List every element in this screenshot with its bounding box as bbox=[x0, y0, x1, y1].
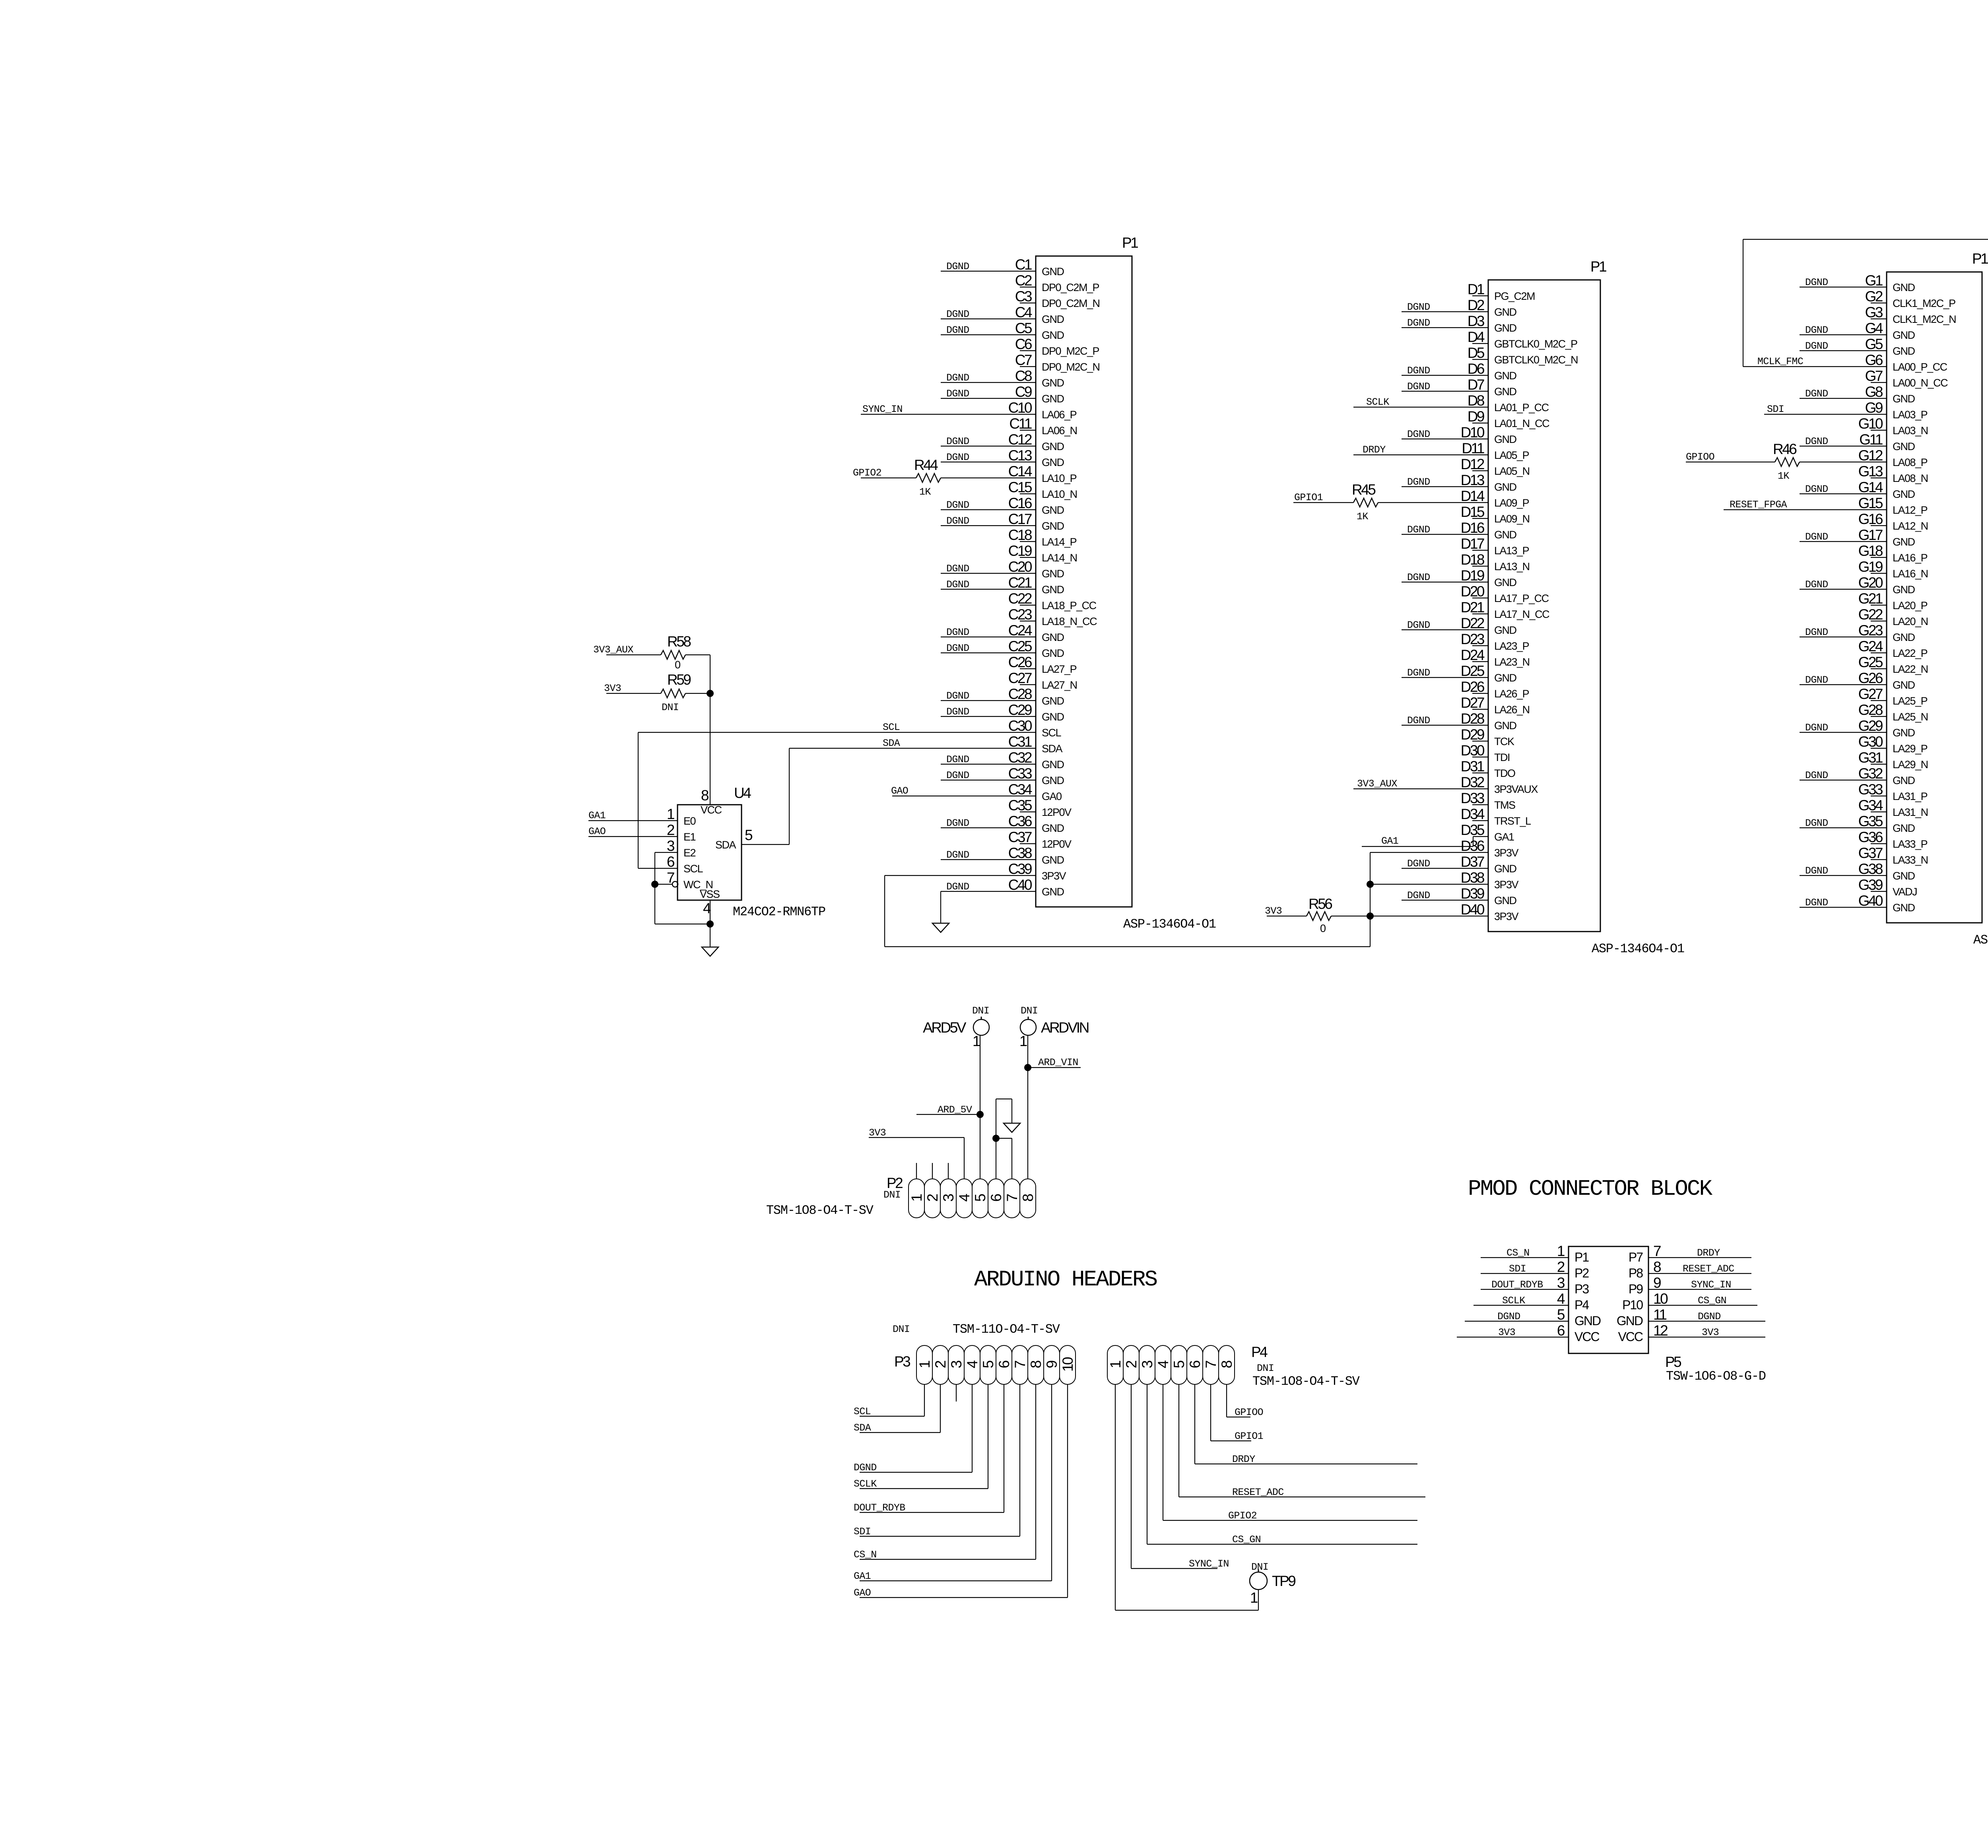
svg-text:D26: D26 bbox=[1461, 679, 1484, 695]
svg-text:DGND: DGND bbox=[1805, 277, 1828, 288]
svg-text:G25: G25 bbox=[1858, 654, 1883, 670]
svg-text:D17: D17 bbox=[1461, 536, 1484, 552]
svg-text:LA06_P: LA06_P bbox=[1042, 409, 1077, 421]
svg-text:11: 11 bbox=[1653, 1306, 1666, 1323]
svg-text:LA22_P: LA22_P bbox=[1893, 647, 1928, 659]
svg-text:TMS: TMS bbox=[1494, 799, 1515, 811]
svg-text:DGND: DGND bbox=[1407, 619, 1430, 631]
svg-text:C32: C32 bbox=[1008, 749, 1032, 766]
svg-text:DOUT_RDYB: DOUT_RDYB bbox=[854, 1502, 905, 1514]
svg-text:DGND: DGND bbox=[1407, 301, 1430, 313]
svg-text:P3: P3 bbox=[1574, 1282, 1589, 1296]
svg-text:VCC: VCC bbox=[701, 804, 722, 816]
svg-text:DNI: DNI bbox=[1021, 1005, 1038, 1017]
svg-text:LA22_N: LA22_N bbox=[1893, 663, 1928, 675]
svg-text:GND: GND bbox=[1893, 775, 1915, 786]
svg-text:C27: C27 bbox=[1008, 670, 1032, 686]
svg-text:5: 5 bbox=[980, 1361, 996, 1369]
svg-text:ARD5V: ARD5V bbox=[923, 1019, 967, 1036]
svg-text:C39: C39 bbox=[1008, 861, 1032, 877]
svg-text:LA17_P_CC: LA17_P_CC bbox=[1494, 592, 1549, 604]
svg-text:3P3V: 3P3V bbox=[1042, 870, 1066, 882]
svg-text:DGND: DGND bbox=[946, 515, 969, 527]
svg-text:GA1: GA1 bbox=[1381, 835, 1398, 847]
svg-text:GBTCLK0_M2C_P: GBTCLK0_M2C_P bbox=[1494, 338, 1577, 350]
svg-text:LA13_P: LA13_P bbox=[1494, 545, 1529, 557]
svg-text:CS_GN: CS_GN bbox=[1698, 1295, 1726, 1306]
svg-text:LA12_P: LA12_P bbox=[1893, 504, 1928, 516]
svg-text:GND: GND bbox=[1042, 711, 1064, 723]
svg-text:7: 7 bbox=[1012, 1361, 1028, 1369]
svg-text:DGND: DGND bbox=[946, 452, 969, 463]
svg-text:C10: C10 bbox=[1008, 400, 1032, 416]
svg-text:DGND: DGND bbox=[946, 706, 969, 718]
svg-text:C26: C26 bbox=[1008, 654, 1032, 670]
svg-text:D9: D9 bbox=[1468, 408, 1484, 425]
svg-text:C8: C8 bbox=[1015, 368, 1032, 384]
svg-text:C11: C11 bbox=[1009, 415, 1032, 432]
svg-text:SCLK: SCLK bbox=[854, 1478, 877, 1490]
svg-text:6: 6 bbox=[1557, 1322, 1565, 1339]
svg-text:U4: U4 bbox=[734, 785, 751, 801]
svg-text:G32: G32 bbox=[1858, 765, 1883, 782]
svg-text:G39: G39 bbox=[1858, 877, 1883, 893]
svg-text:SYNC_IN: SYNC_IN bbox=[862, 404, 903, 415]
svg-text:GND: GND bbox=[1494, 322, 1517, 334]
svg-text:D33: D33 bbox=[1461, 790, 1484, 806]
svg-text:5: 5 bbox=[1171, 1361, 1187, 1369]
svg-text:7: 7 bbox=[1004, 1194, 1020, 1202]
svg-text:G36: G36 bbox=[1858, 829, 1883, 845]
svg-text:D8: D8 bbox=[1468, 392, 1484, 409]
svg-text:CS_GN: CS_GN bbox=[1232, 1534, 1261, 1545]
svg-text:10: 10 bbox=[1653, 1291, 1668, 1307]
svg-text:3: 3 bbox=[940, 1194, 957, 1202]
svg-text:DGND: DGND bbox=[946, 690, 969, 702]
svg-text:P1: P1 bbox=[1122, 235, 1138, 251]
svg-text:ARDVIN: ARDVIN bbox=[1041, 1019, 1089, 1036]
svg-text:ASP-1346O4-O1: ASP-1346O4-O1 bbox=[1592, 941, 1684, 956]
svg-text:LA13_N: LA13_N bbox=[1494, 561, 1530, 573]
svg-text:GA1: GA1 bbox=[588, 810, 606, 821]
svg-text:C12: C12 bbox=[1008, 431, 1032, 448]
svg-text:3: 3 bbox=[1557, 1275, 1565, 1291]
svg-text:CS_N: CS_N bbox=[1507, 1247, 1530, 1259]
svg-text:6: 6 bbox=[988, 1194, 1004, 1202]
svg-text:ASP-1346O4-O1: ASP-1346O4-O1 bbox=[1973, 933, 1988, 947]
svg-text:DGND: DGND bbox=[1407, 381, 1430, 392]
svg-text:DGND: DGND bbox=[1407, 572, 1430, 583]
svg-text:GPIO2: GPIO2 bbox=[853, 467, 881, 479]
svg-text:DGND: DGND bbox=[1407, 715, 1430, 726]
svg-text:LA17_N_CC: LA17_N_CC bbox=[1494, 608, 1549, 620]
svg-text:3: 3 bbox=[667, 838, 674, 854]
svg-text:DGND: DGND bbox=[946, 770, 969, 781]
svg-text:DGND: DGND bbox=[946, 881, 969, 893]
svg-text:VCC: VCC bbox=[1618, 1330, 1642, 1344]
svg-text:DGND: DGND bbox=[1805, 817, 1828, 829]
svg-text:TRST_L: TRST_L bbox=[1494, 815, 1531, 827]
svg-text:9: 9 bbox=[1653, 1275, 1661, 1291]
svg-text:SCL: SCL bbox=[854, 1406, 871, 1417]
svg-text:D16: D16 bbox=[1461, 520, 1484, 536]
svg-text:D6: D6 bbox=[1468, 361, 1484, 377]
svg-text:6: 6 bbox=[996, 1361, 1012, 1369]
svg-text:DNI: DNI bbox=[883, 1189, 901, 1201]
svg-text:C13: C13 bbox=[1008, 447, 1032, 464]
svg-text:DGND: DGND bbox=[854, 1462, 877, 1473]
svg-text:GND: GND bbox=[1042, 886, 1064, 898]
svg-text:R45: R45 bbox=[1352, 481, 1376, 498]
svg-text:TDO: TDO bbox=[1494, 767, 1515, 779]
svg-text:DGND: DGND bbox=[1805, 436, 1828, 447]
svg-text:TSM-11O-O4-T-SV: TSM-11O-O4-T-SV bbox=[953, 1322, 1060, 1337]
svg-text:GND: GND bbox=[1893, 870, 1915, 882]
svg-text:P2: P2 bbox=[887, 1175, 903, 1191]
svg-text:G11: G11 bbox=[1859, 431, 1883, 448]
svg-text:G17: G17 bbox=[1858, 527, 1883, 543]
svg-text:0: 0 bbox=[1320, 922, 1326, 934]
svg-text:D3: D3 bbox=[1468, 313, 1484, 329]
svg-text:D12: D12 bbox=[1461, 456, 1484, 472]
svg-text:DGND: DGND bbox=[1805, 579, 1828, 590]
svg-text:SCLK: SCLK bbox=[1366, 396, 1389, 408]
svg-text:LA06_N: LA06_N bbox=[1042, 425, 1077, 437]
svg-text:DGND: DGND bbox=[946, 372, 969, 384]
svg-text:DP0_M2C_P: DP0_M2C_P bbox=[1042, 345, 1099, 357]
svg-text:D29: D29 bbox=[1461, 726, 1484, 743]
svg-text:DGND: DGND bbox=[946, 324, 969, 336]
svg-text:GND: GND bbox=[1494, 306, 1517, 318]
svg-text:C23: C23 bbox=[1008, 606, 1032, 623]
svg-text:D31: D31 bbox=[1461, 758, 1484, 775]
svg-text:3P3V: 3P3V bbox=[1494, 879, 1519, 891]
svg-text:LA12_N: LA12_N bbox=[1893, 520, 1928, 532]
svg-text:GND: GND bbox=[1042, 695, 1064, 707]
svg-text:R46: R46 bbox=[1773, 441, 1796, 457]
svg-text:7: 7 bbox=[1653, 1243, 1661, 1259]
svg-text:G26: G26 bbox=[1858, 670, 1883, 686]
svg-text:GND: GND bbox=[1494, 672, 1517, 684]
svg-text:D13: D13 bbox=[1461, 472, 1484, 488]
svg-text:PMOD CONNECTOR BLOCK: PMOD CONNECTOR BLOCK bbox=[1468, 1176, 1713, 1202]
svg-text:P1: P1 bbox=[1574, 1250, 1589, 1264]
svg-text:8: 8 bbox=[1219, 1361, 1235, 1369]
svg-text:R44: R44 bbox=[914, 457, 938, 473]
svg-text:P8: P8 bbox=[1629, 1266, 1643, 1280]
svg-text:R56: R56 bbox=[1309, 896, 1332, 912]
svg-text:LA14_N: LA14_N bbox=[1042, 552, 1077, 564]
svg-text:4: 4 bbox=[1557, 1291, 1565, 1307]
svg-text:DRDY: DRDY bbox=[1363, 444, 1386, 456]
svg-text:3V3: 3V3 bbox=[1265, 905, 1282, 917]
svg-text:TCK: TCK bbox=[1494, 736, 1514, 747]
svg-text:G15: G15 bbox=[1858, 495, 1883, 511]
svg-text:LA20_P: LA20_P bbox=[1893, 600, 1928, 611]
svg-text:DGND: DGND bbox=[1407, 858, 1430, 870]
svg-text:3V3_AUX: 3V3_AUX bbox=[1357, 778, 1397, 790]
svg-text:DRDY: DRDY bbox=[1697, 1247, 1720, 1259]
svg-text:C29: C29 bbox=[1008, 702, 1032, 718]
svg-text:GND: GND bbox=[1494, 433, 1517, 445]
svg-text:LA05_P: LA05_P bbox=[1494, 449, 1529, 461]
svg-text:G5: G5 bbox=[1865, 336, 1883, 352]
svg-text:G40: G40 bbox=[1858, 893, 1883, 909]
svg-text:D24: D24 bbox=[1461, 647, 1485, 663]
svg-text:GND: GND bbox=[1042, 393, 1064, 405]
svg-text:LA26_N: LA26_N bbox=[1494, 704, 1530, 716]
svg-text:GND: GND bbox=[1042, 647, 1064, 659]
svg-text:DGND: DGND bbox=[1805, 324, 1828, 336]
svg-text:ARD_5V: ARD_5V bbox=[938, 1104, 972, 1116]
svg-text:D1: D1 bbox=[1468, 281, 1484, 297]
svg-text:GND: GND bbox=[1494, 863, 1517, 875]
svg-text:RESET_ADC: RESET_ADC bbox=[1232, 1487, 1284, 1498]
svg-text:C33: C33 bbox=[1008, 765, 1032, 782]
svg-text:GND: GND bbox=[1617, 1314, 1643, 1328]
svg-text:LA25_P: LA25_P bbox=[1893, 695, 1928, 707]
svg-text:D25: D25 bbox=[1461, 663, 1485, 679]
svg-text:GND: GND bbox=[1042, 520, 1064, 532]
svg-text:SDA: SDA bbox=[854, 1422, 871, 1434]
svg-text:CLK1_M2C_P: CLK1_M2C_P bbox=[1893, 297, 1955, 309]
svg-text:RESET_FPGA: RESET_FPGA bbox=[1730, 499, 1787, 511]
svg-text:GPIOO: GPIOO bbox=[1235, 1407, 1263, 1418]
svg-text:8: 8 bbox=[1020, 1194, 1036, 1202]
svg-text:D11: D11 bbox=[1462, 440, 1484, 456]
svg-text:G37: G37 bbox=[1858, 845, 1883, 861]
svg-text:GND: GND bbox=[1893, 536, 1915, 548]
svg-text:LA08_P: LA08_P bbox=[1893, 456, 1928, 468]
svg-text:D19: D19 bbox=[1461, 567, 1484, 584]
svg-text:3V3: 3V3 bbox=[1702, 1327, 1719, 1338]
svg-text:C20: C20 bbox=[1008, 559, 1032, 575]
svg-text:VADJ: VADJ bbox=[1893, 886, 1917, 898]
svg-text:LA09_N: LA09_N bbox=[1494, 513, 1530, 525]
svg-text:G27: G27 bbox=[1858, 686, 1883, 702]
svg-text:C4: C4 bbox=[1015, 304, 1032, 320]
svg-text:4: 4 bbox=[964, 1361, 980, 1369]
svg-text:C15: C15 bbox=[1008, 479, 1032, 495]
svg-text:GND: GND bbox=[1042, 441, 1064, 452]
svg-text:GND: GND bbox=[1042, 775, 1064, 786]
svg-text:LA20_N: LA20_N bbox=[1893, 615, 1928, 627]
svg-text:G16: G16 bbox=[1858, 511, 1883, 527]
svg-text:D14: D14 bbox=[1461, 488, 1485, 504]
svg-text:8: 8 bbox=[1653, 1259, 1661, 1275]
svg-text:G10: G10 bbox=[1858, 415, 1883, 432]
svg-text:P9: P9 bbox=[1629, 1282, 1643, 1296]
svg-text:DNI: DNI bbox=[1251, 1561, 1268, 1573]
svg-text:GND: GND bbox=[1042, 377, 1064, 389]
svg-text:GAO: GAO bbox=[891, 785, 908, 797]
svg-text:0: 0 bbox=[675, 659, 681, 671]
svg-text:GND: GND bbox=[1893, 345, 1915, 357]
svg-text:GND: GND bbox=[1494, 529, 1517, 541]
svg-text:C34: C34 bbox=[1008, 781, 1032, 798]
svg-text:D37: D37 bbox=[1461, 854, 1484, 870]
svg-text:G8: G8 bbox=[1865, 384, 1883, 400]
svg-text:C5: C5 bbox=[1015, 320, 1032, 336]
svg-text:GPIO1: GPIO1 bbox=[1294, 492, 1323, 503]
svg-text:1: 1 bbox=[1557, 1243, 1565, 1259]
svg-text:DGND: DGND bbox=[1497, 1311, 1520, 1322]
svg-text:1K: 1K bbox=[1357, 511, 1368, 522]
svg-text:DGND: DGND bbox=[1407, 317, 1430, 329]
svg-text:5: 5 bbox=[1557, 1306, 1565, 1323]
svg-text:DGND: DGND bbox=[1805, 388, 1828, 400]
svg-text:1: 1 bbox=[916, 1361, 933, 1369]
svg-text:P2: P2 bbox=[1574, 1266, 1589, 1280]
svg-text:LA01_P_CC: LA01_P_CC bbox=[1494, 402, 1549, 413]
svg-text:DNI: DNI bbox=[893, 1324, 910, 1335]
svg-text:MCLK_FMC: MCLK_FMC bbox=[1757, 356, 1803, 367]
svg-text:GA1: GA1 bbox=[854, 1570, 871, 1582]
svg-text:3V3_AUX: 3V3_AUX bbox=[593, 644, 633, 656]
svg-text:D23: D23 bbox=[1461, 631, 1484, 647]
svg-text:DGND: DGND bbox=[946, 309, 969, 320]
svg-text:SDA: SDA bbox=[883, 738, 900, 749]
svg-text:GND: GND bbox=[1042, 822, 1064, 834]
svg-text:D39: D39 bbox=[1461, 885, 1484, 902]
svg-text:DNI: DNI bbox=[972, 1005, 989, 1017]
svg-text:12P0V: 12P0V bbox=[1042, 806, 1072, 818]
svg-text:GAO: GAO bbox=[588, 826, 606, 837]
svg-text:DGND: DGND bbox=[1698, 1311, 1721, 1322]
svg-text:D15: D15 bbox=[1461, 504, 1485, 520]
svg-text:LA03_P: LA03_P bbox=[1893, 409, 1928, 421]
svg-text:DGND: DGND bbox=[946, 849, 969, 861]
svg-text:D38: D38 bbox=[1461, 870, 1484, 886]
svg-text:C16: C16 bbox=[1008, 495, 1032, 511]
svg-text:DGND: DGND bbox=[1407, 429, 1430, 440]
svg-text:GND: GND bbox=[1042, 504, 1064, 516]
svg-text:G3: G3 bbox=[1865, 304, 1883, 320]
svg-text:C3: C3 bbox=[1015, 288, 1032, 305]
svg-text:G33: G33 bbox=[1858, 781, 1883, 798]
svg-text:3V3: 3V3 bbox=[869, 1127, 886, 1139]
svg-text:2: 2 bbox=[1557, 1259, 1565, 1275]
svg-text:GPIOO: GPIOO bbox=[1686, 451, 1714, 463]
svg-text:GND: GND bbox=[1494, 481, 1517, 493]
svg-text:3P3VAUX: 3P3VAUX bbox=[1494, 783, 1538, 795]
svg-text:GA0: GA0 bbox=[1042, 790, 1062, 802]
svg-text:DP0_C2M_P: DP0_C2M_P bbox=[1042, 281, 1099, 293]
svg-text:LA33_N: LA33_N bbox=[1893, 854, 1928, 866]
svg-text:5: 5 bbox=[745, 827, 753, 843]
svg-text:C28: C28 bbox=[1008, 686, 1032, 702]
svg-text:G21: G21 bbox=[1858, 590, 1883, 607]
svg-text:1: 1 bbox=[667, 806, 674, 822]
svg-text:D40: D40 bbox=[1461, 901, 1485, 918]
svg-text:G35: G35 bbox=[1858, 813, 1883, 829]
svg-text:LA25_N: LA25_N bbox=[1893, 711, 1928, 723]
svg-text:D34: D34 bbox=[1461, 806, 1485, 822]
svg-text:DNI: DNI bbox=[662, 702, 679, 713]
svg-text:C14: C14 bbox=[1008, 463, 1032, 479]
svg-text:G28: G28 bbox=[1858, 702, 1883, 718]
svg-text:C18: C18 bbox=[1008, 527, 1032, 543]
svg-text:LA16_P: LA16_P bbox=[1893, 552, 1928, 564]
svg-text:1: 1 bbox=[1019, 1033, 1027, 1049]
svg-text:C2: C2 bbox=[1015, 272, 1032, 289]
svg-text:P4: P4 bbox=[1251, 1344, 1268, 1360]
svg-text:G30: G30 bbox=[1858, 734, 1883, 750]
svg-text:GND: GND bbox=[1893, 281, 1915, 293]
svg-text:C9: C9 bbox=[1015, 384, 1032, 400]
svg-text:3V3: 3V3 bbox=[604, 683, 621, 694]
svg-text:D22: D22 bbox=[1461, 615, 1484, 631]
svg-text:LA03_N: LA03_N bbox=[1893, 425, 1928, 437]
svg-text:7: 7 bbox=[667, 870, 674, 886]
svg-text:RESET_ADC: RESET_ADC bbox=[1683, 1263, 1734, 1275]
svg-text:G19: G19 bbox=[1858, 559, 1883, 575]
svg-text:SYNC_IN: SYNC_IN bbox=[1691, 1279, 1731, 1291]
svg-text:10: 10 bbox=[1060, 1357, 1076, 1372]
svg-text:D21: D21 bbox=[1461, 599, 1484, 615]
svg-text:LA09_P: LA09_P bbox=[1494, 497, 1529, 509]
svg-text:DGND: DGND bbox=[1805, 722, 1828, 734]
svg-text:D35: D35 bbox=[1461, 822, 1485, 838]
svg-text:R59: R59 bbox=[667, 672, 691, 688]
svg-text:GBTCLK0_M2C_N: GBTCLK0_M2C_N bbox=[1494, 354, 1578, 366]
svg-text:D27: D27 bbox=[1461, 695, 1484, 711]
svg-text:LA01_N_CC: LA01_N_CC bbox=[1494, 417, 1549, 429]
svg-text:1K: 1K bbox=[919, 486, 931, 498]
svg-text:DGND: DGND bbox=[946, 643, 969, 654]
svg-text:2: 2 bbox=[1123, 1361, 1140, 1369]
svg-text:GND: GND bbox=[1893, 902, 1915, 914]
svg-text:G13: G13 bbox=[1858, 463, 1883, 479]
svg-text:CLK1_M2C_N: CLK1_M2C_N bbox=[1893, 313, 1956, 325]
svg-text:ASP-1346O4-O1: ASP-1346O4-O1 bbox=[1123, 917, 1216, 932]
svg-text:PG_C2M: PG_C2M bbox=[1494, 290, 1535, 302]
svg-text:SDI: SDI bbox=[854, 1526, 871, 1537]
svg-text:LA00_P_CC: LA00_P_CC bbox=[1893, 361, 1947, 373]
svg-text:DGND: DGND bbox=[946, 388, 969, 400]
svg-text:SCL: SCL bbox=[883, 722, 900, 733]
svg-text:3V3: 3V3 bbox=[1498, 1327, 1515, 1338]
svg-text:GPIO2: GPIO2 bbox=[1228, 1510, 1257, 1522]
svg-text:D5: D5 bbox=[1468, 345, 1485, 361]
svg-text:3P3V: 3P3V bbox=[1494, 910, 1519, 922]
svg-text:DGND: DGND bbox=[1407, 476, 1430, 488]
svg-text:GND: GND bbox=[1893, 822, 1915, 834]
svg-text:1K: 1K bbox=[1778, 470, 1789, 482]
svg-text:LA31_N: LA31_N bbox=[1893, 806, 1928, 818]
svg-text:GND: GND bbox=[1893, 393, 1915, 405]
svg-text:GND: GND bbox=[1893, 488, 1915, 500]
svg-text:P4: P4 bbox=[1574, 1298, 1589, 1312]
svg-text:SCLK: SCLK bbox=[1502, 1295, 1525, 1306]
svg-text:DGND: DGND bbox=[1805, 483, 1828, 495]
svg-text:C36: C36 bbox=[1008, 813, 1032, 829]
svg-text:SDI: SDI bbox=[1509, 1263, 1526, 1275]
svg-text:LA23_P: LA23_P bbox=[1494, 640, 1529, 652]
svg-text:D10: D10 bbox=[1461, 424, 1485, 441]
svg-text:GND: GND bbox=[1574, 1314, 1601, 1328]
svg-text:DP0_C2M_N: DP0_C2M_N bbox=[1042, 297, 1100, 309]
svg-text:D7: D7 bbox=[1468, 377, 1484, 393]
svg-text:DNI: DNI bbox=[1257, 1363, 1274, 1374]
svg-text:DGND: DGND bbox=[1805, 865, 1828, 877]
svg-text:C22: C22 bbox=[1008, 590, 1032, 607]
svg-text:LA33_P: LA33_P bbox=[1893, 838, 1928, 850]
svg-text:GND: GND bbox=[1893, 631, 1915, 643]
svg-text:DGND: DGND bbox=[1805, 340, 1828, 352]
svg-text:LA16_N: LA16_N bbox=[1893, 568, 1928, 580]
svg-text:SCL: SCL bbox=[683, 863, 703, 875]
